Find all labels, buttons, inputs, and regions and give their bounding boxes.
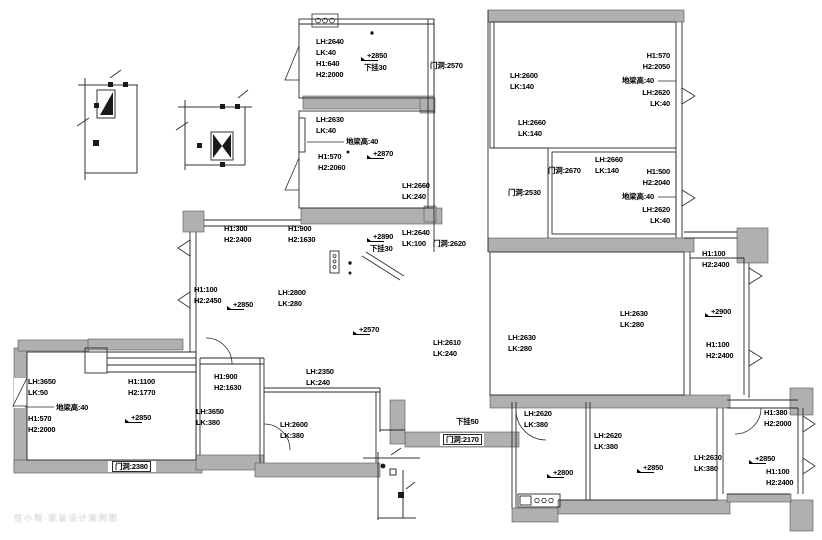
r8-measure: LH:3650LK:50 <box>28 376 56 398</box>
kitchen-measure: LH:2620LK:380 <box>524 408 552 430</box>
r2-window-left: H1:570H2:2060 <box>318 151 345 173</box>
r3-floorbeam-right: 地梁高:40 <box>622 75 654 86</box>
r3-measure-left: LH:2600LK:140 <box>510 70 538 92</box>
r5-measure-right: LH:2630LK:280 <box>620 308 648 330</box>
r4-floorbeam-right: 地梁高:40 <box>622 191 654 202</box>
r8-window-top: H1:1100H2:1770 <box>128 376 155 398</box>
r4-measure-right: LH:2620LK:40 <box>642 204 670 226</box>
hall-drop: 下挂50 <box>456 416 479 427</box>
r1-measure: LH:2640LK:40H1:640H2:2000 <box>316 36 344 80</box>
watermark: 住小帮·家装设计案例图 <box>14 512 118 524</box>
r2-elevation: +2870 <box>370 148 393 160</box>
r1-elevation: +2850下挂30 <box>364 50 387 73</box>
door-hall2: 门洞:2530 <box>508 187 541 198</box>
door-hall-bottom: 门洞:2170 <box>443 434 482 445</box>
kitchen-elevation: +2800 <box>550 467 573 479</box>
hall-elevation-2: +2570 <box>356 324 379 336</box>
door-r4: 门洞:2670 <box>548 165 581 176</box>
hall-window-left: H1:100H2:2450 <box>194 284 221 306</box>
r8-elevation: +2850 <box>128 412 151 424</box>
r4-window-right: H1:500H2:2040 <box>643 166 670 188</box>
mid-measure: LH:2620LK:380 <box>594 430 622 452</box>
mid-elevation: +2850 <box>640 462 663 474</box>
r9-window: H1:900H2:1630 <box>214 371 241 393</box>
r2-measure-br: LH:2660LK:240 <box>402 180 430 202</box>
door-r8: 门洞:2380 <box>112 461 151 472</box>
hall-measure-bottom: LH:2350LK:240 <box>306 366 334 388</box>
hall-measure: LH:2800LK:280 <box>278 287 306 309</box>
vest-measure: LH:2640LK:100 <box>402 227 430 249</box>
r3-measure-bottom: LH:2660LK:140 <box>518 117 546 139</box>
r6-elevation: +2900 <box>708 306 731 318</box>
r3-measure-right: LH:2620LK:40 <box>642 87 670 109</box>
door-top-corridor: 门洞:2570 <box>430 60 463 71</box>
r3-window-right: H1:570H2:2050 <box>643 50 670 72</box>
vest-elevation: +2890下挂30 <box>370 231 393 254</box>
r6-window-2: H1:100H2:2400 <box>706 339 733 361</box>
r9-measure: LH:3650LK:380 <box>196 406 224 428</box>
hall-window-top2: H1:900H2:1630 <box>288 223 315 245</box>
hall-measure-br: LH:2610LK:240 <box>433 337 461 359</box>
annotation-layer: LH:2640LK:40H1:640H2:2000+2850下挂30门洞:257… <box>0 0 822 540</box>
br-elevation: +2850 <box>752 453 775 465</box>
hall-window-top: H1:300H2:2400 <box>224 223 251 245</box>
r8-window-left: H1:570H2:2000 <box>28 413 55 435</box>
br-window-top: H1:380H2:2000 <box>764 407 791 429</box>
door-vest: 门洞:2620 <box>433 238 466 249</box>
r5-measure-left: LH:2630LK:280 <box>508 332 536 354</box>
br-window-right: H1:100H2:2400 <box>766 466 793 488</box>
r2-floorbeam: 地梁高:40 <box>346 136 378 147</box>
r4-measure: LH:2660LK:140 <box>595 154 623 176</box>
floorplan-page: LH:2640LK:40H1:640H2:2000+2850下挂30门洞:257… <box>0 0 822 540</box>
mid-measure-right: LH:2630LK:380 <box>694 452 722 474</box>
hall-elevation-1: +2850 <box>230 299 253 311</box>
r10-measure: LH:2600LK:380 <box>280 419 308 441</box>
r2-measure-left: LH:2630LK:40 <box>316 114 344 136</box>
r6-window-1: H1:100H2:2400 <box>702 248 729 270</box>
r8-floorbeam: 地梁高:40 <box>56 402 88 413</box>
